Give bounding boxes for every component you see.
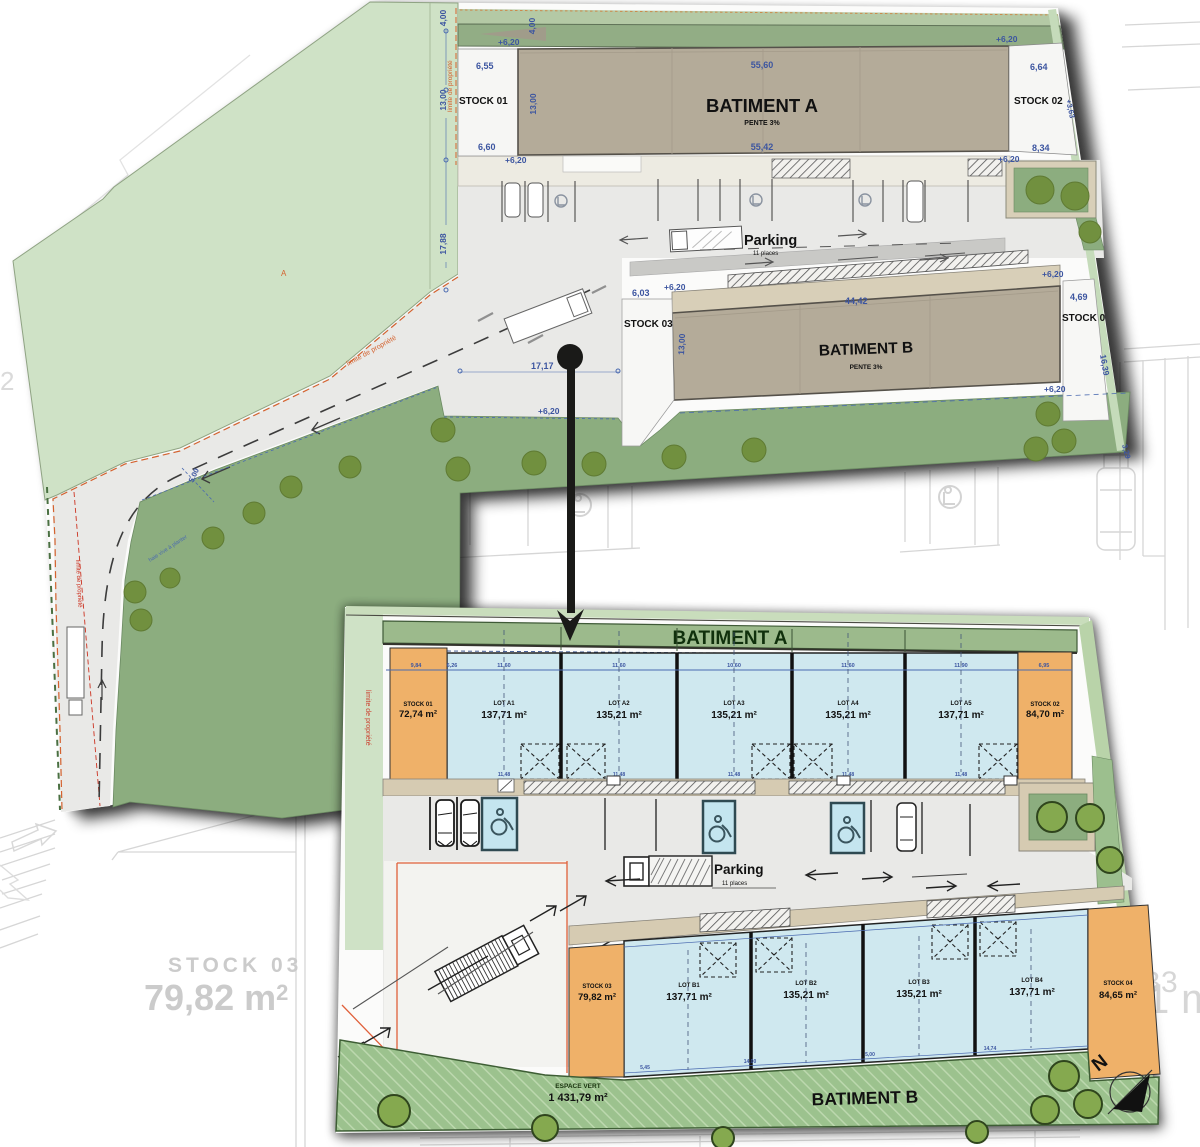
svg-text:14,00: 14,00 [744, 1059, 757, 1065]
svg-text:44,42: 44,42 [845, 296, 868, 306]
svg-text:Parking: Parking [744, 233, 797, 249]
svg-text:137,71 m²: 137,71 m² [666, 992, 712, 1003]
svg-text:11,48: 11,48 [498, 772, 510, 778]
svg-text:8,34: 8,34 [1032, 143, 1050, 153]
svg-text:11 places: 11 places [722, 881, 747, 887]
svg-text:84,65 m²: 84,65 m² [1099, 990, 1137, 1001]
svg-text:BATIMENT A: BATIMENT A [672, 628, 787, 649]
svg-text:+6,20: +6,20 [538, 406, 560, 416]
svg-text:limite de propriété: limite de propriété [364, 690, 371, 746]
svg-text:BATIMENT A: BATIMENT A [706, 95, 818, 116]
svg-text:5,45: 5,45 [640, 1065, 650, 1071]
svg-text:STOCK 03: STOCK 03 [624, 319, 673, 330]
svg-text:PENTE 3%: PENTE 3% [744, 120, 780, 127]
svg-text:+6,20: +6,20 [498, 37, 520, 47]
svg-text:6,55: 6,55 [476, 61, 494, 71]
svg-text:137,71 m²: 137,71 m² [1009, 987, 1055, 998]
svg-text:17,88: 17,88 [438, 233, 448, 255]
svg-text:A: A [281, 269, 287, 278]
svg-text:STOCK 0: STOCK 0 [1062, 313, 1106, 324]
svg-text:5,00: 5,00 [865, 1052, 875, 1058]
svg-text:72,74 m²: 72,74 m² [399, 709, 437, 720]
svg-text:LOT B4: LOT B4 [1021, 978, 1043, 984]
svg-text:BATIMENT B: BATIMENT B [818, 339, 913, 359]
svg-text:11,48: 11,48 [728, 772, 740, 778]
svg-text:9,84: 9,84 [411, 663, 423, 669]
svg-text:+6,20: +6,20 [998, 154, 1020, 164]
svg-text:6,60: 6,60 [478, 142, 496, 152]
svg-text:6,95: 6,95 [1039, 663, 1050, 669]
svg-text:4,00: 4,00 [527, 17, 537, 34]
svg-text:STOCK 03: STOCK 03 [168, 954, 302, 977]
svg-text:+6,20: +6,20 [996, 34, 1018, 44]
svg-text:PENTE 3%: PENTE 3% [850, 364, 883, 371]
svg-text:STOCK 01: STOCK 01 [459, 96, 508, 107]
svg-text:79,82 m2: 79,82 m2 [144, 977, 288, 1018]
svg-text:4,00: 4,00 [438, 9, 448, 26]
svg-text:+6,20: +6,20 [664, 282, 686, 292]
svg-text:6,26: 6,26 [447, 663, 458, 669]
svg-text:Parking: Parking [714, 862, 764, 877]
svg-text:BATIMENT B: BATIMENT B [811, 1087, 918, 1110]
svg-text:ESPACE VERT: ESPACE VERT [555, 1083, 600, 1090]
svg-text:LOT B1: LOT B1 [678, 983, 700, 989]
svg-text:55,42: 55,42 [751, 142, 774, 152]
svg-text:+6,20: +6,20 [505, 155, 527, 165]
svg-text:limite de propriété: limite de propriété [447, 60, 454, 112]
svg-text:6,64: 6,64 [1030, 62, 1048, 72]
svg-text:STOCK 01: STOCK 01 [403, 702, 433, 708]
svg-text:17,17: 17,17 [531, 361, 554, 371]
svg-text:14,74: 14,74 [984, 1046, 997, 1052]
svg-text:13,00: 13,00 [676, 333, 687, 355]
svg-text:11 places: 11 places [753, 251, 778, 257]
svg-text:STOCK 02: STOCK 02 [1030, 702, 1060, 708]
svg-text:2: 2 [0, 366, 14, 396]
svg-text:55,60: 55,60 [751, 60, 774, 70]
svg-text:+6,20: +6,20 [1044, 384, 1066, 394]
svg-text:+6,20: +6,20 [1042, 269, 1064, 279]
svg-text:4,69: 4,69 [1070, 292, 1088, 302]
svg-text:1 431,79 m²: 1 431,79 m² [548, 1092, 608, 1104]
svg-text:STOCK 03: STOCK 03 [582, 984, 612, 990]
svg-text:6,03: 6,03 [632, 288, 650, 298]
svg-text:11,48: 11,48 [955, 772, 967, 778]
svg-text:STOCK 04: STOCK 04 [1103, 981, 1133, 987]
svg-text:84,70 m²: 84,70 m² [1026, 709, 1064, 720]
svg-text:STOCK 02: STOCK 02 [1014, 96, 1063, 107]
svg-text:79,82 m²: 79,82 m² [578, 992, 616, 1003]
svg-text:13,00: 13,00 [528, 93, 538, 115]
